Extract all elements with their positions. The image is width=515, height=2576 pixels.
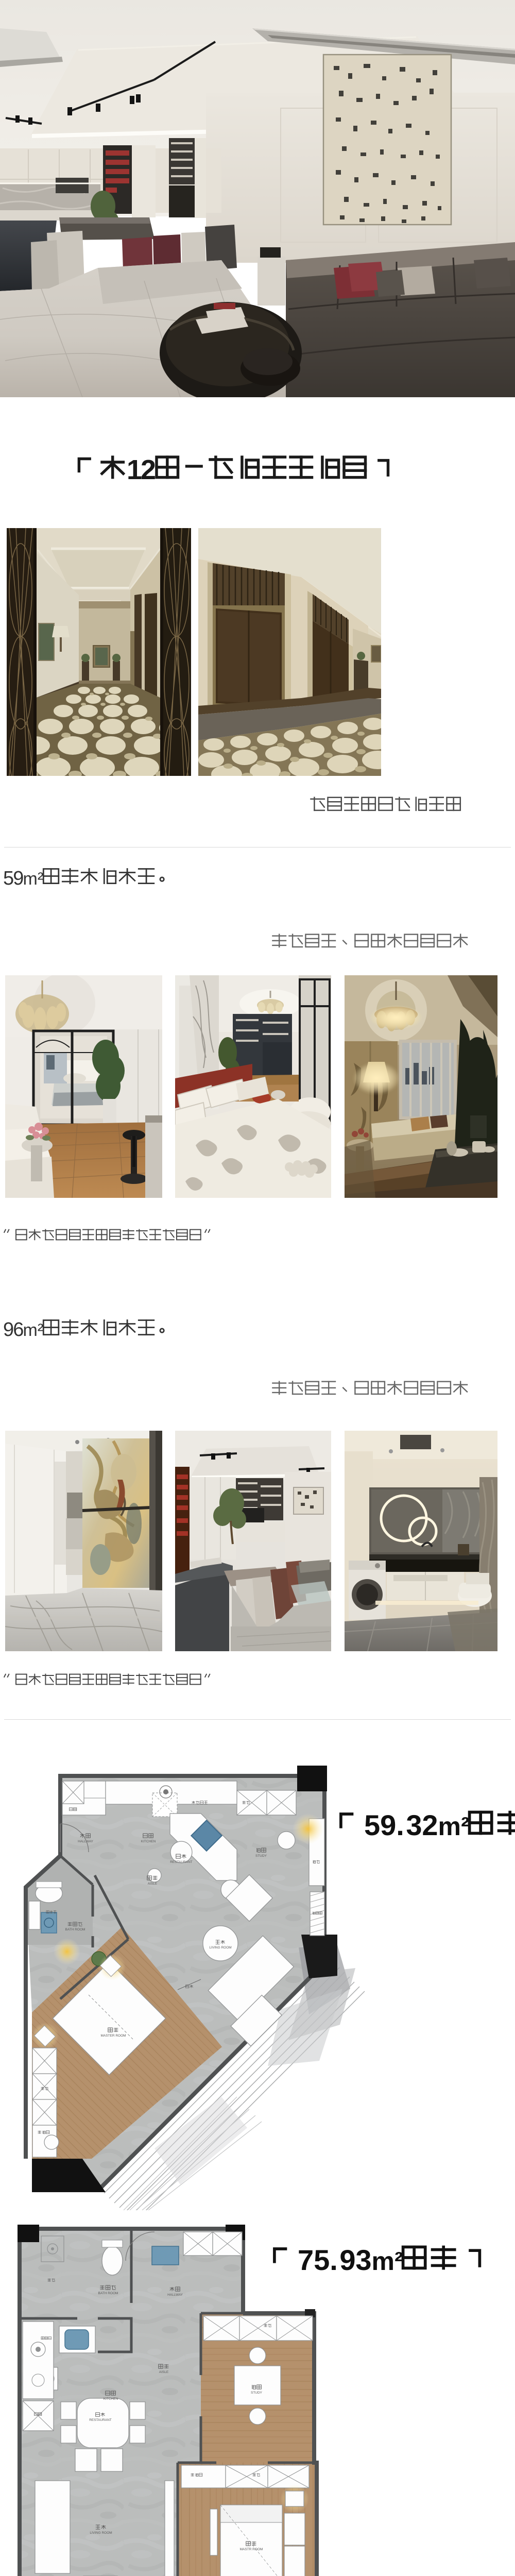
svg-text:.: . <box>330 2244 338 2276</box>
svg-text:5: 5 <box>364 1809 380 1841</box>
svg-text:m²: m² <box>438 1812 470 1841</box>
svg-text:RESTAURANT: RESTAURANT <box>89 2418 112 2422</box>
svg-text:RESTAURANT: RESTAURANT <box>170 1860 193 1864</box>
svg-text:5: 5 <box>3 868 14 889</box>
svg-text:.: . <box>396 1809 404 1841</box>
svg-text:3: 3 <box>406 1809 422 1841</box>
svg-text:STUDY: STUDY <box>251 2391 263 2395</box>
svg-text:5: 5 <box>314 2244 330 2276</box>
svg-text:m²: m² <box>23 1320 44 1340</box>
svg-text:9: 9 <box>339 2244 355 2276</box>
svg-text:1: 1 <box>127 454 142 485</box>
svg-text:AISLE: AISLE <box>159 2370 169 2374</box>
svg-text:HALLWAY: HALLWAY <box>167 2293 183 2297</box>
svg-text:LIVING ROOM: LIVING ROOM <box>209 1946 231 1950</box>
svg-text:BATH ROOM: BATH ROOM <box>98 2292 118 2295</box>
svg-text:6: 6 <box>13 1319 24 1341</box>
svg-text:AISLE: AISLE <box>148 1882 158 1886</box>
svg-text:9: 9 <box>3 1319 14 1341</box>
svg-text:STUDY: STUDY <box>255 1854 267 1858</box>
svg-text:MASTER ROOM: MASTER ROOM <box>100 2034 126 2038</box>
svg-text:LIVING ROOM: LIVING ROOM <box>90 2531 112 2535</box>
svg-text:9: 9 <box>380 1809 396 1841</box>
svg-text:MASTR ROOM: MASTR ROOM <box>240 2548 263 2551</box>
svg-text:9: 9 <box>13 868 24 889</box>
svg-text:2: 2 <box>422 1809 438 1841</box>
svg-text:m²: m² <box>372 2247 403 2276</box>
svg-text:2: 2 <box>141 454 156 485</box>
svg-text:3: 3 <box>355 2244 371 2276</box>
svg-text:BATH ROOM: BATH ROOM <box>65 1928 85 1931</box>
svg-text:HALLWAY: HALLWAY <box>78 1840 94 1843</box>
svg-text:KITCHEN: KITCHEN <box>141 1840 156 1843</box>
svg-text:7: 7 <box>298 2244 314 2276</box>
svg-text:KITCHEN: KITCHEN <box>104 2397 118 2401</box>
svg-text:m²: m² <box>23 869 44 889</box>
